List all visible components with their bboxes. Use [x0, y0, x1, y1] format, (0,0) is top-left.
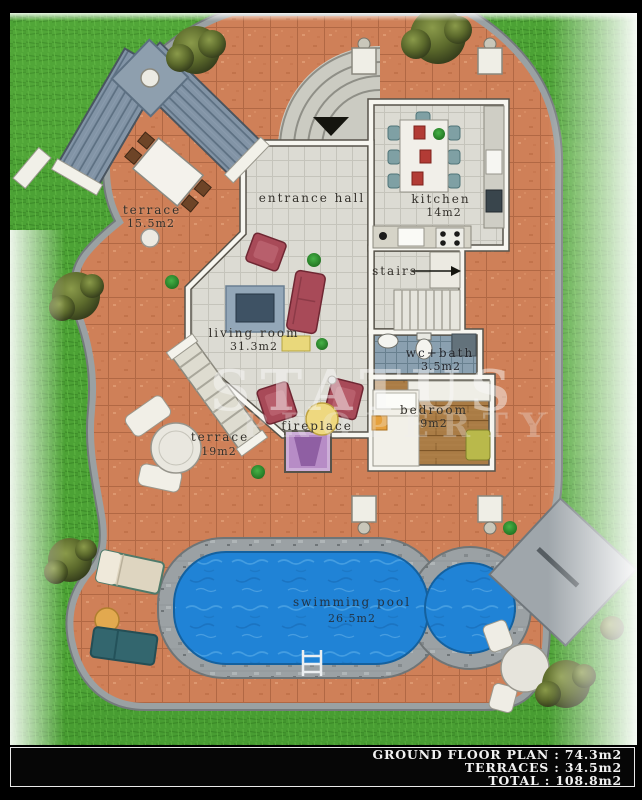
floor-plan-drawing	[0, 0, 642, 800]
ground-floor-plan-total: GROUND FLOOR PLAN : 74.3m2	[373, 748, 622, 761]
small-round-table	[141, 229, 159, 247]
grand-total: TOTAL : 108.8m2	[488, 774, 622, 787]
top-edge-fade	[10, 13, 637, 21]
fireplace	[285, 431, 331, 472]
left-edge-fade	[10, 230, 65, 745]
plan-summary-bar: GROUND FLOOR PLAN : 74.3m2 TERRACES : 34…	[10, 747, 635, 787]
swimming-pool	[158, 538, 531, 678]
terraces-total: TERRACES : 34.5m2	[465, 761, 622, 774]
right-edge-fade	[548, 13, 637, 745]
floor-plan-image: STATUS PROPERTY entrance hall kitchen 14…	[0, 0, 642, 800]
